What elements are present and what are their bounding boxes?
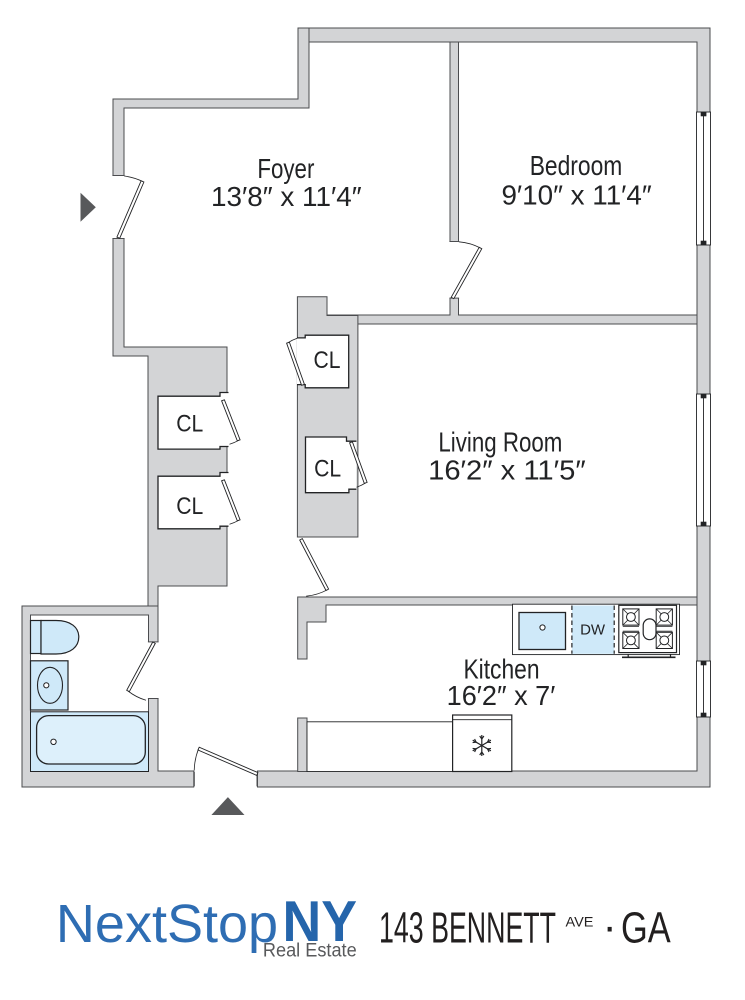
- svg-text:143 BENNETT: 143 BENNETT: [379, 903, 556, 952]
- svg-text:9′10″ x 11′4″: 9′10″ x 11′4″: [501, 179, 651, 210]
- svg-text:NextStop: NextStop: [56, 895, 278, 954]
- svg-text:Bedroom: Bedroom: [530, 150, 623, 181]
- svg-text:CL: CL: [176, 493, 203, 520]
- svg-text:GA: GA: [621, 903, 671, 952]
- svg-text:Foyer: Foyer: [257, 153, 314, 184]
- svg-text:CL: CL: [314, 347, 341, 374]
- svg-text:Living Room: Living Room: [438, 426, 562, 457]
- svg-text:16′2″ x 11′5″: 16′2″ x 11′5″: [428, 454, 586, 485]
- svg-text:DW: DW: [580, 623, 605, 639]
- svg-text:AVE: AVE: [566, 915, 594, 931]
- svg-text:Real Estate: Real Estate: [263, 941, 357, 962]
- svg-text:13′8″ x 11′4″: 13′8″ x 11′4″: [211, 181, 362, 212]
- svg-text:16′2″ x 7′: 16′2″ x 7′: [447, 680, 556, 711]
- svg-text:·: ·: [603, 903, 617, 951]
- svg-text:CL: CL: [314, 455, 341, 482]
- svg-text:CL: CL: [176, 410, 203, 437]
